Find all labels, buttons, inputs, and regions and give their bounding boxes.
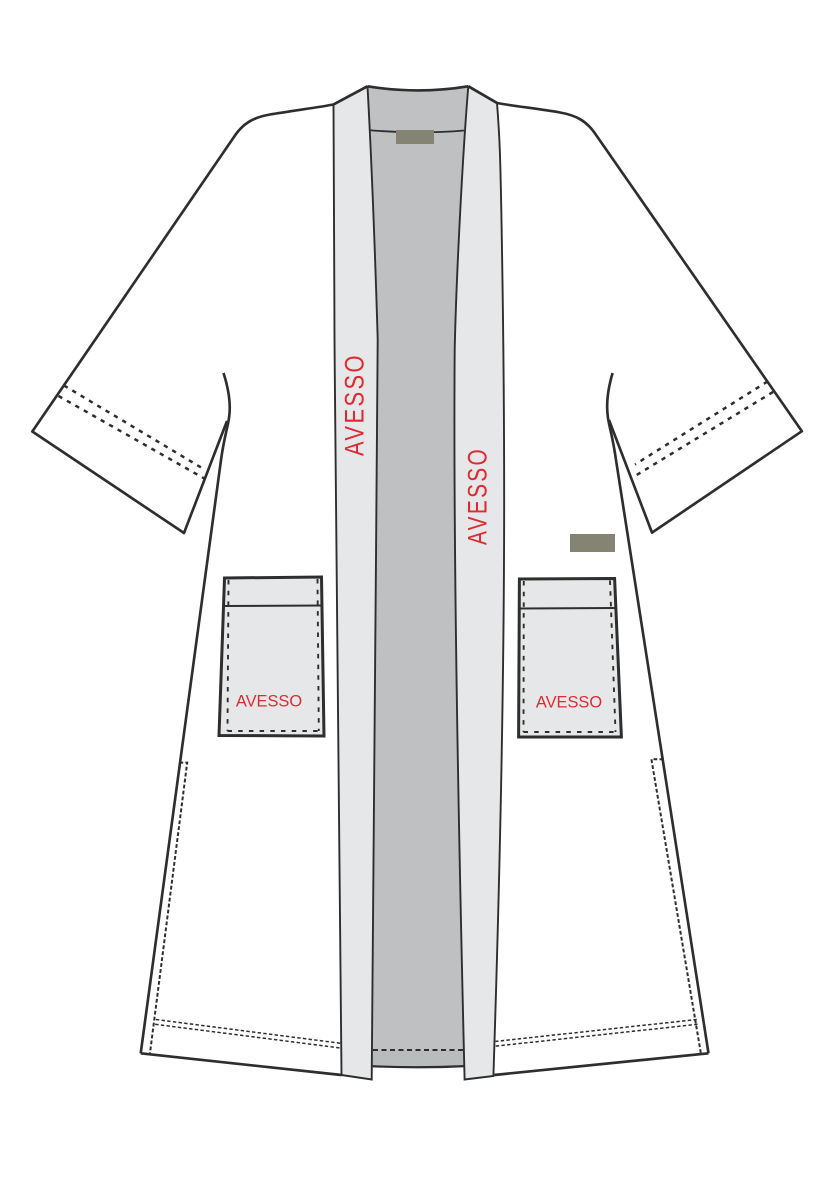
svg-text:AVESSO: AVESSO [463, 447, 493, 545]
svg-text:AVESSO: AVESSO [340, 353, 370, 456]
svg-text:AVESSO: AVESSO [536, 694, 602, 712]
svg-text:AVESSO: AVESSO [236, 693, 302, 711]
